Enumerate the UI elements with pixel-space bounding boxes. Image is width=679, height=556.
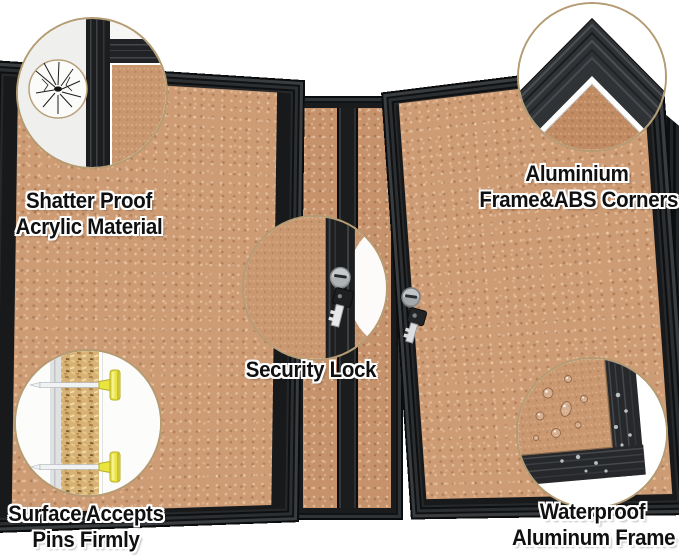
label-waterproof-frame: Waterproof Aluminum Frame [512, 499, 673, 551]
lock-with-key [398, 286, 430, 348]
frame-corner-icon [519, 4, 665, 150]
product-image-canvas: Shatter Proof Acrylic Material Aluminium… [0, 0, 679, 556]
callout-circle-shatterproof [16, 17, 168, 169]
label-shatter-line1: Shatter Proof [6, 188, 172, 214]
label-security-lock: Security Lock [241, 357, 381, 383]
label-pins-line2: Pins Firmly [6, 527, 166, 553]
label-surface-pins: Surface Accepts Pins Firmly [6, 501, 166, 553]
label-waterproof-line2: Aluminum Frame [512, 525, 673, 551]
label-aluminium-line1: Aluminium [479, 161, 674, 187]
label-pins-line1: Surface Accepts [6, 501, 166, 527]
label-waterproof-line1: Waterproof [512, 499, 673, 525]
callout-circle-pins [14, 349, 162, 497]
callout-circle-lock [242, 215, 388, 361]
security-lock-icon [244, 217, 386, 359]
label-lock-line1: Security Lock [241, 357, 381, 383]
label-aluminium-line2: Frame&ABS Corners [479, 187, 674, 213]
push-pins-icon [16, 351, 160, 495]
callout-circle-aluminium [517, 2, 667, 152]
shatter-crack-icon [18, 19, 166, 167]
callout-circle-waterproof [516, 357, 668, 509]
label-shatter-line2: Acrylic Material [6, 214, 172, 240]
label-aluminium-frame: Aluminium Frame&ABS Corners [479, 161, 674, 213]
water-drops-icon [518, 359, 666, 507]
label-shatter-proof: Shatter Proof Acrylic Material [6, 188, 172, 240]
